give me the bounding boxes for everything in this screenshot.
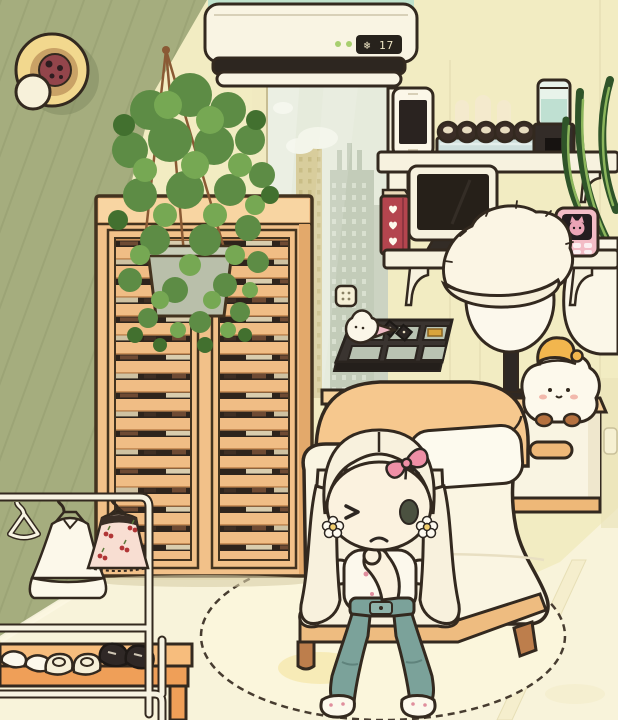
eye-open (400, 500, 418, 524)
dress-ruffle (30, 578, 106, 598)
sushi-rolls (438, 122, 534, 142)
air-conditioner[interactable] (205, 0, 417, 86)
ac-status-light (346, 41, 352, 47)
scene-canvas (0, 0, 618, 720)
board-game[interactable] (334, 311, 452, 372)
gold-piece[interactable] (428, 329, 442, 336)
heart-book[interactable] (381, 190, 409, 254)
bed-leg (298, 642, 314, 669)
bedroom-scene: ❄ 17 (0, 0, 618, 720)
white-shoe-right (402, 696, 436, 718)
nightstand-base (502, 498, 600, 512)
wardrobe-shadow (94, 575, 314, 587)
small-plate (16, 75, 50, 109)
ac-vent-lip (217, 72, 401, 86)
white-shoe-left (321, 696, 355, 718)
sushi-tray[interactable] (437, 122, 535, 155)
ac-status-light (335, 41, 341, 47)
drawer-handle[interactable] (530, 442, 572, 458)
wall-switch[interactable] (336, 286, 356, 306)
ac-display (356, 35, 402, 54)
wall-outlet (604, 428, 617, 454)
bench-leg (170, 686, 186, 720)
smartphone[interactable] (393, 88, 433, 156)
